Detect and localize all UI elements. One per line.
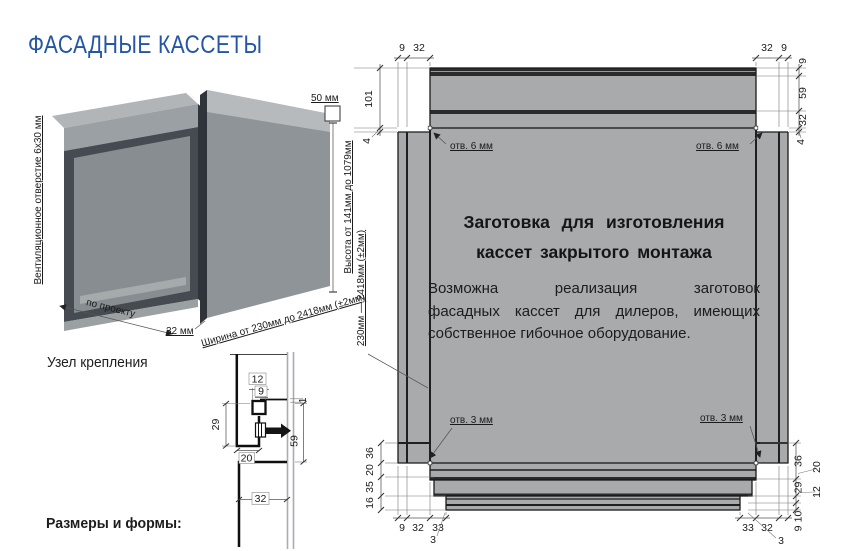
dim-bl-h32: 32 [412, 522, 424, 534]
blank-title-line1: Заготовка для изготовления [428, 212, 760, 233]
dim-br-h32: 32 [761, 522, 773, 534]
bottom-flaps [428, 461, 758, 510]
blank-text-block: Заготовка для изготовления кассет закрыт… [428, 212, 760, 346]
depth-label: 32 мм [166, 326, 194, 337]
bolt-icon [256, 423, 292, 438]
hole3-left-label: отв. 3 мм [450, 415, 493, 426]
dim-bl-35: 35 [364, 481, 376, 493]
mounting-node-heading: Узел крепления [47, 354, 148, 371]
top-flap [428, 68, 758, 130]
dim-bl-16: 16 [364, 497, 376, 509]
mounting-node-drawing: 12 9 1 29 20 59 [200, 350, 322, 551]
page-title: ФАСАДНЫЕ КАССЕТЫ [28, 31, 263, 60]
dim-59: 59 [289, 435, 301, 447]
dim-br-29: 29 [793, 482, 805, 494]
dim-tl-101: 101 [363, 90, 375, 108]
dim-32: 32 [255, 493, 267, 505]
dim-tl-9: 9 [399, 42, 405, 54]
side-range-label: 230мм — 2418мм (±2мм) [356, 230, 367, 346]
dim-bl-h9: 9 [399, 522, 405, 534]
dim-bl-36: 36 [364, 447, 376, 459]
dim-9: 9 [258, 386, 264, 398]
dim-tr-v4: 4 [795, 139, 807, 145]
blank-title-line2: кассет закрытого монтажа [428, 242, 760, 263]
dim-br-36: 36 [793, 455, 805, 467]
dim-br-10: 10 [793, 511, 805, 523]
sizes-heading: Размеры и формы: [46, 515, 182, 532]
dim-tr-v59: 59 [797, 87, 809, 99]
dim-29: 29 [210, 419, 222, 431]
vent-hole-label: Вентиляционное отверстие 6х30 мм [33, 115, 44, 284]
flange-label: 50 мм [311, 93, 339, 104]
top-left-dimensions: 9 32 101 4 [354, 42, 434, 144]
top-right-dimensions: 32 9 9 59 32 4 [752, 42, 809, 145]
dim-bl-3: 3 [430, 534, 436, 546]
cassette-illustration: Вентиляционное отверстие 6х30 мм по прое… [30, 80, 370, 350]
dim-tl-32: 32 [413, 42, 425, 54]
dim-br-20: 20 [811, 461, 823, 473]
blank-body-line3: собственное гибочное оборудование. [428, 323, 760, 346]
blank-body-line2: фасадных кассет для дилеров, имеющих [428, 301, 760, 324]
dim-12: 12 [252, 374, 264, 386]
blank-body-line1: Возможна реализация заготовок [428, 278, 760, 301]
dim-br-h33: 33 [742, 522, 754, 534]
dim-tr-32: 32 [761, 42, 773, 54]
dim-br-3: 3 [778, 535, 784, 547]
dim-br-9: 9 [793, 525, 805, 531]
flange-swatch [325, 106, 340, 121]
dim-tr-v9: 9 [797, 58, 809, 64]
dim-tr-9: 9 [781, 42, 787, 54]
left-cassette [52, 93, 205, 331]
hole6-left-label: отв. 6 мм [450, 141, 493, 152]
right-cassette [200, 90, 330, 324]
hole3-right-label: отв. 3 мм [700, 413, 743, 424]
catalog-page: ФАСАДНЫЕ КАССЕТЫ Вентиляционное отверсти… [0, 0, 844, 551]
hole6-right-label: отв. 6 мм [696, 141, 739, 152]
dim-20: 20 [241, 453, 253, 465]
dim-bl-20: 20 [364, 464, 376, 476]
dim-tr-v32: 32 [797, 114, 809, 126]
dim-1: 1 [297, 397, 309, 403]
dim-tl-4: 4 [361, 138, 373, 144]
